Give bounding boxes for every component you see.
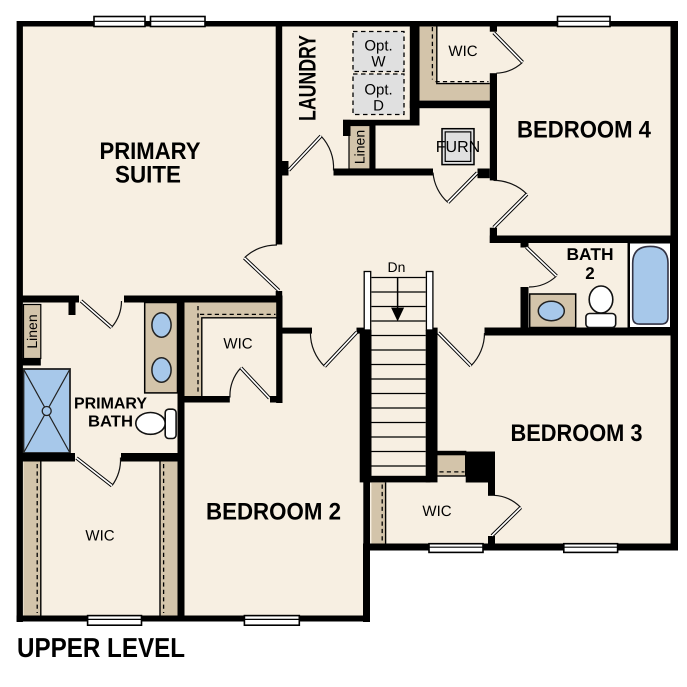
svg-text:Dn: Dn [388, 259, 406, 275]
svg-text:LAUNDRY: LAUNDRY [295, 35, 322, 121]
svg-text:BEDROOM 3: BEDROOM 3 [511, 420, 643, 447]
svg-text:WIC: WIC [422, 503, 451, 520]
svg-text:BATH: BATH [567, 245, 614, 264]
svg-text:FURN: FURN [436, 139, 480, 156]
svg-text:BEDROOM 2: BEDROOM 2 [206, 499, 341, 526]
svg-text:2: 2 [585, 264, 594, 283]
svg-text:Opt.: Opt. [364, 82, 392, 99]
svg-text:SUITE: SUITE [115, 162, 181, 189]
svg-text:Opt.: Opt. [364, 38, 392, 55]
svg-text:WIC: WIC [85, 528, 114, 545]
svg-text:Linen: Linen [352, 130, 368, 164]
svg-text:D: D [373, 98, 384, 115]
svg-text:WIC: WIC [448, 43, 477, 60]
svg-text:PRIMARY: PRIMARY [74, 396, 147, 413]
svg-text:BATH: BATH [88, 414, 133, 431]
svg-text:Linen: Linen [24, 314, 40, 348]
svg-text:UPPER LEVEL: UPPER LEVEL [17, 632, 185, 663]
svg-text:BEDROOM 4: BEDROOM 4 [517, 117, 652, 144]
svg-text:WIC: WIC [223, 336, 252, 353]
svg-text:W: W [371, 54, 386, 71]
